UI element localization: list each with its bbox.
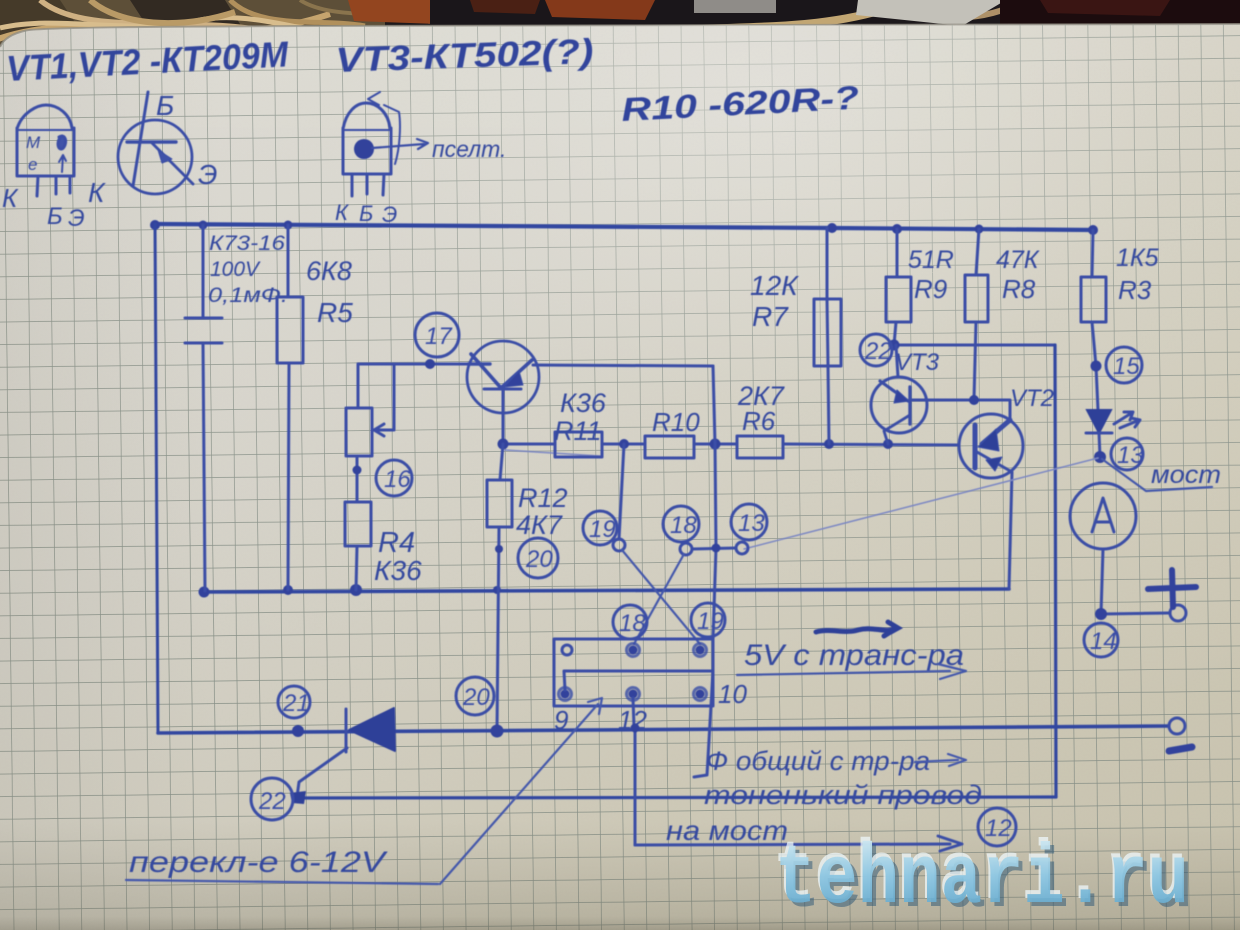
svg-text:е: е xyxy=(28,155,37,174)
svg-text:Э: Э xyxy=(198,159,217,190)
svg-text:R12: R12 xyxy=(518,483,568,513)
svg-text:К: К xyxy=(335,200,349,225)
svg-text:тоненький провод: тоненький провод xyxy=(704,780,982,810)
svg-text:VT2: VT2 xyxy=(1010,385,1054,412)
svg-text:R5: R5 xyxy=(317,297,353,328)
svg-text:мост: мост xyxy=(1151,461,1221,489)
svg-text:4К7: 4К7 xyxy=(516,510,563,540)
svg-text:20: 20 xyxy=(462,684,490,711)
svg-text:Э: Э xyxy=(68,205,85,232)
svg-text:22: 22 xyxy=(864,338,892,365)
svg-text:19: 19 xyxy=(589,516,616,543)
svg-text:47К: 47К xyxy=(996,246,1040,274)
svg-text:14: 14 xyxy=(1090,628,1117,655)
svg-text:Б: Б xyxy=(359,201,373,226)
svg-text:К36: К36 xyxy=(374,555,422,586)
svg-text:tehnari.ru: tehnari.ru xyxy=(775,833,1189,928)
svg-text:Б: Б xyxy=(156,90,174,121)
svg-text:17: 17 xyxy=(425,323,453,350)
svg-text:100V: 100V xyxy=(210,258,261,281)
svg-text:К: К xyxy=(88,177,106,208)
svg-text:9: 9 xyxy=(554,705,568,735)
svg-text:16: 16 xyxy=(384,466,411,493)
svg-text:13: 13 xyxy=(738,510,765,537)
svg-text:15: 15 xyxy=(1113,353,1140,380)
svg-text:R11: R11 xyxy=(554,416,602,446)
svg-text:R10: R10 xyxy=(652,407,700,437)
svg-text:К73-16: К73-16 xyxy=(209,232,285,255)
svg-text:Э: Э xyxy=(382,202,397,227)
svg-text:на мост: на мост xyxy=(666,815,788,846)
svg-text:R3: R3 xyxy=(1118,275,1152,305)
svg-text:51R: 51R xyxy=(908,246,954,274)
svg-text:перекл-е 6-12V: перекл-е 6-12V xyxy=(129,846,389,879)
svg-text:1К5: 1К5 xyxy=(1116,244,1159,272)
svg-text:12К: 12К xyxy=(750,270,799,301)
svg-text:21: 21 xyxy=(282,690,310,717)
svg-text:R6: R6 xyxy=(742,406,776,436)
svg-text:18: 18 xyxy=(670,512,697,539)
svg-text:R8: R8 xyxy=(1002,274,1036,304)
svg-text:пселт.: пселт. xyxy=(432,136,506,162)
svg-text:Б: Б xyxy=(47,203,63,230)
svg-text:R7: R7 xyxy=(752,301,789,332)
svg-text:22: 22 xyxy=(258,788,286,815)
svg-text:20: 20 xyxy=(525,546,553,573)
svg-text:М: М xyxy=(26,133,41,152)
svg-text:К36: К36 xyxy=(560,388,607,418)
svg-text:R9: R9 xyxy=(914,274,947,304)
svg-text:5V с транс-ра: 5V с транс-ра xyxy=(744,639,964,672)
svg-text:VT3: VT3 xyxy=(895,349,940,376)
svg-text:18: 18 xyxy=(619,610,646,637)
svg-text:Ф общий с тр-ра: Ф общий с тр-ра xyxy=(706,746,930,776)
svg-text:19: 19 xyxy=(697,608,724,635)
svg-text:10: 10 xyxy=(718,679,747,709)
svg-text:13: 13 xyxy=(1117,442,1144,469)
svg-text:К: К xyxy=(2,183,19,213)
svg-text:6К8: 6К8 xyxy=(306,256,352,286)
